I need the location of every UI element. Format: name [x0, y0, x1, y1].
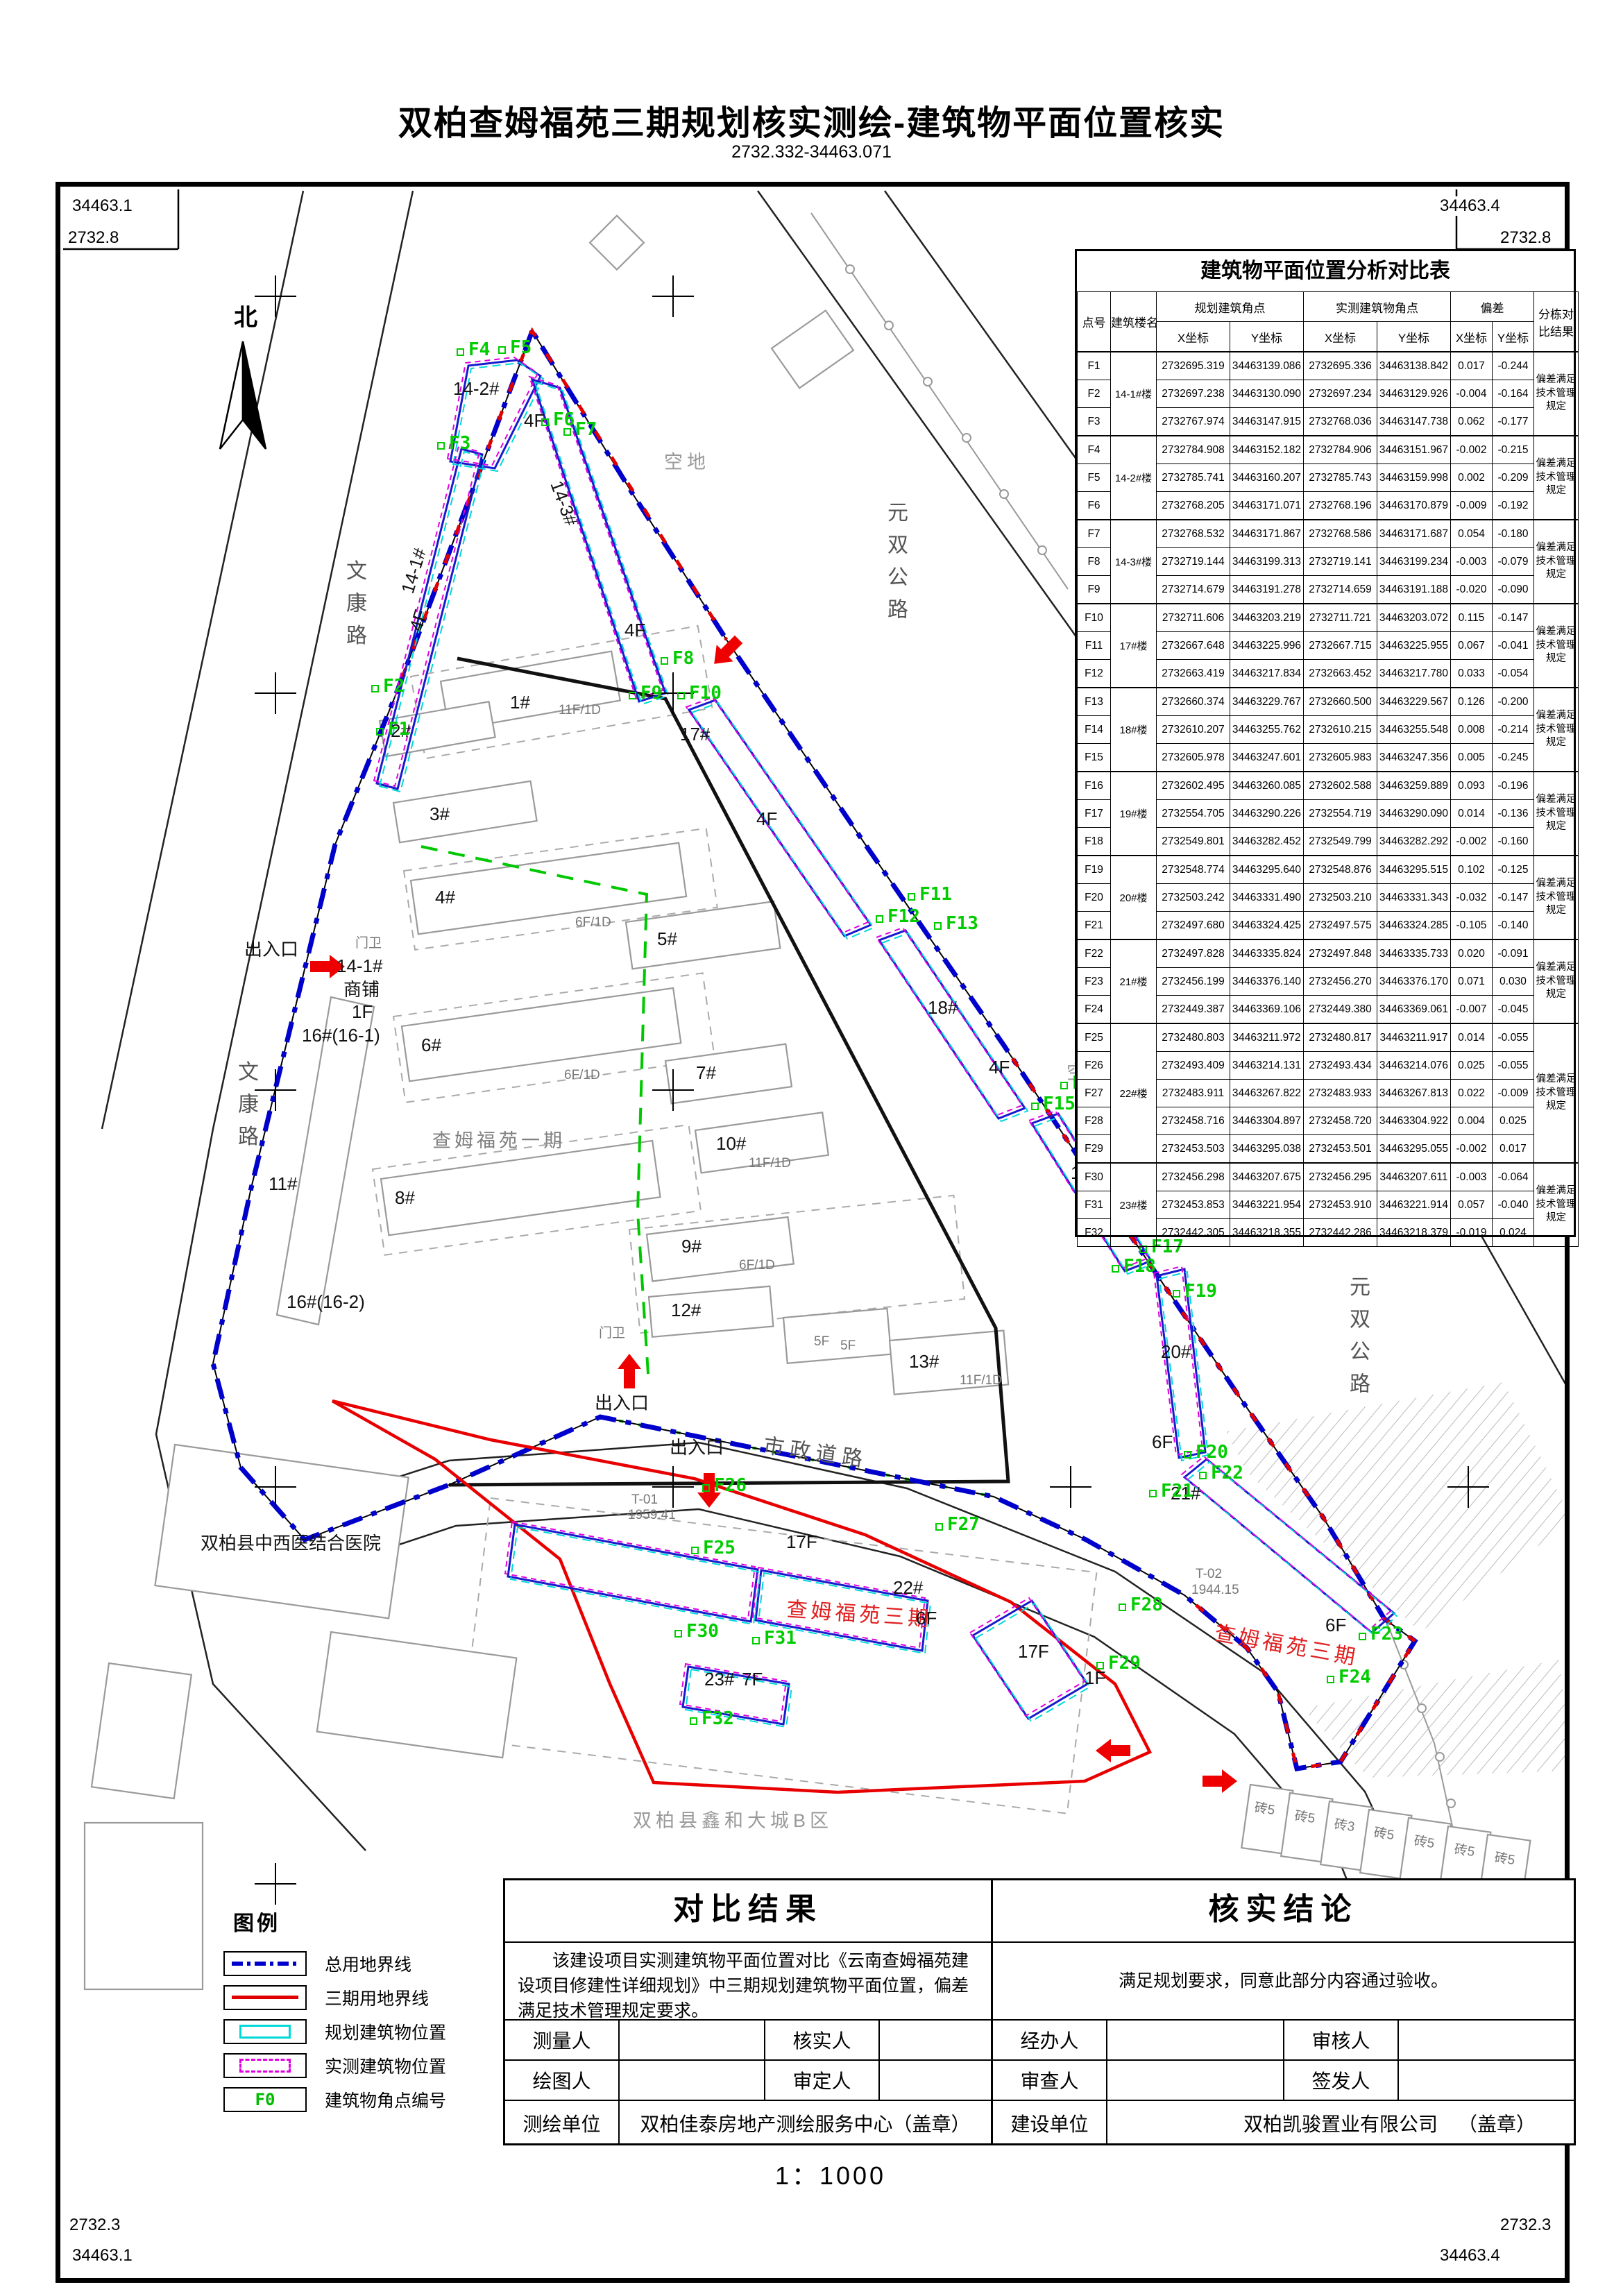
survey-unit-label: 测绘单位 — [505, 2101, 620, 2145]
legend-item: 总用地界线 — [223, 1946, 501, 1980]
corner-point-label: F11 — [919, 884, 952, 905]
table-cell: -0.007 — [1451, 996, 1493, 1024]
table-cell: -0.245 — [1493, 744, 1534, 772]
col-header-x: X坐标 — [1451, 322, 1493, 352]
corner-point-mark — [1327, 1676, 1334, 1683]
col-header-measured: 实测建筑物角点 — [1304, 292, 1451, 322]
table-cell: 2732602.495 — [1157, 772, 1230, 800]
table-cell: 34463247.601 — [1230, 744, 1304, 772]
approver-label: 审定人 — [765, 2061, 880, 2100]
table-cell: F32 — [1078, 1219, 1111, 1247]
map-label: 4F — [624, 620, 645, 640]
table-cell: 2732503.242 — [1157, 884, 1230, 912]
table-cell: 2732663.452 — [1304, 660, 1377, 688]
table-cell: -0.209 — [1493, 464, 1534, 492]
corner-coord-br-x: 2732.3 — [1498, 2216, 1553, 2235]
conclusion-panel: 核实结论 满足规划要求，同意此部分内容通过验收。 经办人 审核人 审查人 签发人… — [991, 1878, 1576, 2145]
verifier-value[interactable] — [880, 2021, 991, 2059]
map-label: 13# — [909, 1351, 940, 1372]
table-cell: 34463324.285 — [1377, 912, 1451, 940]
map-label: 双柏县鑫和大城B区 — [633, 1810, 833, 1831]
surveyor-value[interactable] — [620, 2021, 765, 2059]
map-label: 14-3# — [546, 478, 581, 529]
table-cell: 2732503.210 — [1304, 884, 1377, 912]
legend-symbol-line-red — [223, 1985, 307, 2010]
table-cell: -0.040 — [1493, 1191, 1534, 1219]
result-panel-body: 该建设项目实测建筑物平面位置对比《云南查姆福苑建设项目修建性详细规划》中三期规划… — [505, 1943, 991, 2021]
table-cell: F22 — [1078, 939, 1111, 968]
table-cell: 2732456.295 — [1304, 1163, 1377, 1191]
map-label: 市政道路 — [762, 1434, 869, 1472]
map-label: 7# — [696, 1062, 716, 1083]
corner-point-label: F32 — [702, 1708, 734, 1729]
table-cell: 34463335.733 — [1377, 939, 1451, 968]
table-cell: 0.014 — [1451, 800, 1493, 828]
table-cell: 18#楼 — [1111, 688, 1157, 772]
examiner-value[interactable] — [1107, 2061, 1284, 2100]
legend-symbol-rect-cyan — [223, 2019, 307, 2044]
map-label: 出入口 — [244, 939, 298, 960]
corner-coord-tl-y: 34463.1 — [70, 196, 135, 216]
map-label: 双柏县中西医结合医院 — [201, 1533, 381, 1554]
corner-coord-tr-x: 2732.8 — [1498, 228, 1553, 248]
table-cell: 0.002 — [1451, 464, 1493, 492]
corner-point-mark — [690, 1718, 697, 1724]
map-label: 砖3 — [1333, 1817, 1355, 1835]
table-row: F1017#楼2732711.60634463203.2192732711.72… — [1078, 604, 1579, 632]
table-cell: 0.017 — [1451, 352, 1493, 380]
table-cell: -0.244 — [1493, 352, 1534, 380]
corner-point-label: F28 — [1130, 1595, 1163, 1615]
table-cell: 2732711.721 — [1304, 604, 1377, 632]
corner-point-label: F22 — [1211, 1463, 1243, 1483]
table-cell: -0.136 — [1493, 800, 1534, 828]
issuer-label: 签发人 — [1284, 2061, 1399, 2100]
table-cell: 34463247.356 — [1377, 744, 1451, 772]
construction-unit-label: 建设单位 — [993, 2101, 1107, 2145]
corner-coord-br-y: 34463.4 — [1438, 2246, 1502, 2265]
map-label: 16#(16-1) — [302, 1025, 380, 1046]
road-wenkang-edge — [102, 191, 303, 1129]
table-cell: F3 — [1078, 408, 1111, 436]
col-header-y: Y坐标 — [1493, 322, 1534, 352]
table-cell: -0.002 — [1451, 1135, 1493, 1164]
table-cell: 34463376.170 — [1377, 968, 1451, 996]
table-cell: 34463147.915 — [1230, 408, 1304, 436]
table-cell: 0.025 — [1493, 1107, 1534, 1135]
table-cell: 34463331.490 — [1230, 884, 1304, 912]
table-cell: 19#楼 — [1111, 772, 1157, 856]
construction-unit-value: 双柏凯骏置业有限公司 （盖章） — [1107, 2101, 1574, 2145]
planned-outline — [692, 703, 874, 939]
map-label: 1# — [510, 692, 530, 713]
corner-point-label: F18 — [1123, 1256, 1156, 1277]
table-cell: 22#楼 — [1111, 1023, 1157, 1163]
corner-point-label: F7 — [575, 419, 597, 440]
table-cell: 34463199.234 — [1377, 548, 1451, 576]
table-cell: -0.009 — [1493, 1080, 1534, 1107]
legend-item-label: 规划建筑物位置 — [325, 2019, 446, 2044]
map-label: 出入口 — [670, 1437, 724, 1458]
legend-item: 规划建筑物位置 — [223, 2014, 501, 2048]
table-cell: -0.192 — [1493, 492, 1534, 520]
table-cell: 34463170.879 — [1377, 492, 1451, 520]
table-cell: 2732483.933 — [1304, 1080, 1377, 1107]
corner-point-label: F9 — [640, 683, 662, 704]
map-label: 元双公路 — [1350, 1276, 1376, 1396]
sheet-frame: 北文康路文康路元双公路元双公路市政道路空地空地查姆福苑一期查姆福苑三期查姆福苑三… — [56, 182, 1570, 2283]
legend-item-label: 建筑物角点编号 — [325, 2087, 446, 2112]
table-cell: 2732660.374 — [1157, 688, 1230, 716]
corner-point-mark — [908, 894, 915, 900]
table-cell: 34463130.090 — [1230, 380, 1304, 408]
table-cell: 0.030 — [1493, 968, 1534, 996]
map-label: 20# — [1161, 1341, 1191, 1362]
table-cell: 23#楼 — [1111, 1163, 1157, 1247]
table-cell: 0.025 — [1451, 1052, 1493, 1080]
corner-point-label: F23 — [1370, 1624, 1403, 1644]
table-cell: -0.147 — [1493, 604, 1534, 632]
map-label: 查姆福苑一期 — [432, 1130, 566, 1151]
corner-point-mark — [661, 658, 668, 664]
measured-outline — [876, 928, 1022, 1116]
building-18 — [879, 930, 1025, 1119]
table-cell: 34463282.292 — [1377, 828, 1451, 856]
table-cell: -0.019 — [1451, 1219, 1493, 1247]
table-cell: 2732610.207 — [1157, 716, 1230, 744]
table-cell: 2732456.298 — [1157, 1163, 1230, 1191]
table-cell: 2732493.434 — [1304, 1052, 1377, 1080]
table-cell: 2732480.803 — [1157, 1023, 1230, 1052]
table-cell: F12 — [1078, 660, 1111, 688]
map-label: 门卫 — [599, 1325, 625, 1341]
map-label: 6F — [1152, 1431, 1173, 1452]
surveyor-label: 测量人 — [505, 2021, 620, 2059]
map-label: 5F — [840, 1338, 856, 1353]
table-cell: F15 — [1078, 744, 1111, 772]
corner-point-label: F24 — [1339, 1667, 1371, 1687]
table-cell: 0.024 — [1493, 1219, 1534, 1247]
map-label: 4F — [989, 1057, 1010, 1078]
table-cell: F1 — [1078, 352, 1111, 380]
table-cell: 34463214.131 — [1230, 1052, 1304, 1080]
table-cell: -0.055 — [1493, 1052, 1534, 1080]
table-cell: 0.008 — [1451, 716, 1493, 744]
table-cell: 2732456.199 — [1157, 968, 1230, 996]
table-cell: 2732453.910 — [1304, 1191, 1377, 1219]
table-cell: 偏差满足技术管理规定 — [1534, 436, 1579, 520]
table-cell: 2732697.238 — [1157, 380, 1230, 408]
table-cell: 2732768.205 — [1157, 492, 1230, 520]
table-cell: 2732605.983 — [1304, 744, 1377, 772]
table-cell: 2732456.270 — [1304, 968, 1377, 996]
table-cell: -0.200 — [1493, 688, 1534, 716]
drafter-value[interactable] — [620, 2061, 765, 2100]
reviewer-value[interactable] — [1399, 2021, 1574, 2059]
table-cell: 34463229.767 — [1230, 688, 1304, 716]
table-cell: 0.004 — [1451, 1107, 1493, 1135]
table-cell: 0.067 — [1451, 632, 1493, 660]
corner-point-mark — [1359, 1633, 1366, 1640]
table-cell: -0.160 — [1493, 828, 1534, 856]
table-cell: 2732785.743 — [1304, 464, 1377, 492]
table-cell: 2732697.234 — [1304, 380, 1377, 408]
table-cell: 34463267.822 — [1230, 1080, 1304, 1107]
table-row: F114-1#楼2732695.31934463139.0862732695.3… — [1078, 352, 1579, 380]
table-cell: F26 — [1078, 1052, 1111, 1080]
table-cell: 偏差满足技术管理规定 — [1534, 1163, 1579, 1247]
corner-point-label: F8 — [672, 648, 694, 669]
table-cell: F14 — [1078, 716, 1111, 744]
table-cell: F9 — [1078, 576, 1111, 604]
corner-coord-tr-y: 34463.4 — [1438, 196, 1502, 216]
building-17 — [689, 700, 871, 936]
map-label: 14-1# — [337, 955, 383, 976]
map-label: 23# — [704, 1669, 735, 1690]
table-cell: 2732667.648 — [1157, 632, 1230, 660]
corner-point-mark — [438, 443, 444, 449]
table-cell: 34463160.207 — [1230, 464, 1304, 492]
map-label: 11F/1D — [960, 1373, 1002, 1388]
table-cell: 0.020 — [1451, 939, 1493, 968]
corner-point-mark — [1032, 1103, 1038, 1109]
corner-point-label: F19 — [1184, 1281, 1217, 1302]
table-cell: 0.005 — [1451, 744, 1493, 772]
map-label: 4F — [756, 808, 777, 829]
table-cell: 17#楼 — [1111, 604, 1157, 688]
corner-point-label: F1 — [388, 719, 409, 740]
measured-outline — [505, 1522, 755, 1619]
table-cell: F29 — [1078, 1135, 1111, 1164]
comparison-table-panel: 建筑物平面位置分析对比表 点号 建筑楼名 规划建筑角点 实测建筑物角点 偏差 分… — [1075, 249, 1576, 1237]
survey-unit-value: 双柏佳泰房地产测绘服务中心（盖章） — [620, 2101, 991, 2145]
map-label: 文康路 — [238, 1061, 264, 1148]
table-cell: F8 — [1078, 548, 1111, 576]
table-cell: 34463171.867 — [1230, 520, 1304, 548]
table-row: F714-3#楼2732768.53234463171.8672732768.5… — [1078, 520, 1579, 548]
table-cell: -0.054 — [1493, 660, 1534, 688]
issuer-value[interactable] — [1399, 2061, 1574, 2100]
table-row: F1619#楼2732602.49534463260.0852732602.58… — [1078, 772, 1579, 800]
table-cell: F13 — [1078, 688, 1111, 716]
approver-value[interactable] — [880, 2061, 991, 2100]
corner-point-label: F2 — [383, 676, 405, 697]
table-cell: 2732442.305 — [1157, 1219, 1230, 1247]
map-label: 1944.15 — [1191, 1583, 1239, 1597]
table-cell: 2732711.606 — [1157, 604, 1230, 632]
map-label: 9# — [681, 1236, 702, 1257]
map-label: 5F — [814, 1334, 829, 1349]
table-cell: 偏差满足技术管理规定 — [1534, 352, 1579, 436]
map-label: 门卫 — [355, 935, 382, 951]
map-label: 14-2# — [453, 378, 500, 399]
table-cell: -0.079 — [1493, 548, 1534, 576]
planned-outline — [882, 933, 1028, 1121]
corner-point-mark — [692, 1547, 698, 1554]
col-header-y: Y坐标 — [1230, 322, 1304, 352]
table-cell: 20#楼 — [1111, 856, 1157, 939]
corner-point-label: F5 — [510, 337, 532, 358]
table-cell: 34463304.922 — [1377, 1107, 1451, 1135]
table-cell: 2732549.801 — [1157, 828, 1230, 856]
table-cell: 0.054 — [1451, 520, 1493, 548]
table-cell: -0.140 — [1493, 912, 1534, 940]
col-header-deviation: 偏差 — [1451, 292, 1534, 322]
table-cell: 偏差满足技术管理规定 — [1534, 1023, 1579, 1163]
table-cell: 34463171.071 — [1230, 492, 1304, 520]
table-cell: 34463331.343 — [1377, 884, 1451, 912]
table-cell: 34463304.897 — [1230, 1107, 1304, 1135]
map-label: 元双公路 — [887, 502, 914, 622]
table-cell: 偏差满足技术管理规定 — [1534, 772, 1579, 856]
map-scale: 1：1000 — [726, 2156, 935, 2192]
comparison-table: 点号 建筑楼名 规划建筑角点 实测建筑物角点 偏差 分栋对比结果 X坐标 Y坐标… — [1077, 291, 1579, 1247]
table-cell: 34463203.219 — [1230, 604, 1304, 632]
corner-point-label: F20 — [1196, 1442, 1228, 1463]
table-cell: 34463147.738 — [1377, 408, 1451, 436]
table-cell: F11 — [1078, 632, 1111, 660]
legend: 图例 总用地界线三期用地界线规划建筑物位置实测建筑物位置F0建筑物角点编号 — [223, 1906, 501, 2116]
table-cell: -0.020 — [1451, 576, 1493, 604]
legend-item-label: 实测建筑物位置 — [325, 2053, 446, 2078]
table-row: F2522#楼2732480.80334463211.9722732480.81… — [1078, 1023, 1579, 1052]
table-cell: 34463225.955 — [1377, 632, 1451, 660]
table-cell: F27 — [1078, 1080, 1111, 1107]
corner-point-mark — [675, 1631, 681, 1637]
corner-point-label: F3 — [449, 433, 470, 454]
table-cell: 2732714.659 — [1304, 576, 1377, 604]
seal-placeholder: （盖章） — [1458, 2109, 1536, 2137]
table-cell: 2732449.387 — [1157, 996, 1230, 1024]
map-label: 砖5 — [1493, 1850, 1515, 1868]
legend-item: F0建筑物角点编号 — [223, 2082, 501, 2116]
col-header-result: 分栋对比结果 — [1534, 292, 1579, 352]
table-cell: 2732497.680 — [1157, 912, 1230, 940]
table-cell: 2732554.705 — [1157, 800, 1230, 828]
table-cell: 2732784.906 — [1304, 436, 1377, 464]
entrance-arrow-icon — [1096, 1739, 1130, 1762]
table-cell: 34463255.548 — [1377, 716, 1451, 744]
table-cell: 0.102 — [1451, 856, 1493, 884]
map-label: 砖5 — [1413, 1833, 1435, 1851]
table-cell: F18 — [1078, 828, 1111, 856]
legend-item-label: 三期用地界线 — [325, 1985, 429, 2010]
table-cell: 2732497.848 — [1304, 939, 1377, 968]
table-cell: 34463207.611 — [1377, 1163, 1451, 1191]
table-cell: -0.003 — [1451, 548, 1493, 576]
map-label: 22# — [893, 1577, 924, 1598]
legend-item-label: 总用地界线 — [325, 1951, 411, 1976]
map-label: 8# — [395, 1187, 415, 1208]
table-cell: 34463159.998 — [1377, 464, 1451, 492]
legend-item: 三期用地界线 — [223, 1980, 501, 2014]
table-cell: 2732442.286 — [1304, 1219, 1377, 1247]
table-cell: 34463191.278 — [1230, 576, 1304, 604]
table-cell: 0.126 — [1451, 688, 1493, 716]
table-cell: 34463376.140 — [1230, 968, 1304, 996]
table-cell: 2732497.828 — [1157, 939, 1230, 968]
table-cell: 2732449.380 — [1304, 996, 1377, 1024]
table-cell: 2732768.196 — [1304, 492, 1377, 520]
result-panel-title: 对比结果 — [505, 1880, 991, 1943]
drafter-label: 绘图人 — [505, 2061, 620, 2100]
table-cell: 0.017 — [1493, 1135, 1534, 1164]
table-cell: -0.032 — [1451, 884, 1493, 912]
table-cell: 2732605.978 — [1157, 744, 1230, 772]
table-cell: 34463295.640 — [1230, 856, 1304, 884]
table-cell: 2732554.719 — [1304, 800, 1377, 828]
corner-point-mark — [372, 686, 378, 692]
table-cell: -0.045 — [1493, 996, 1534, 1024]
table-cell: 2732549.799 — [1304, 828, 1377, 856]
table-cell: -0.041 — [1493, 632, 1534, 660]
table-cell: 34463221.914 — [1377, 1191, 1451, 1219]
table-cell: -0.004 — [1451, 380, 1493, 408]
table-cell: 34463218.379 — [1377, 1219, 1451, 1247]
table-cell: -0.090 — [1493, 576, 1534, 604]
corner-point-label: F26 — [714, 1475, 747, 1496]
table-cell: F21 — [1078, 912, 1111, 940]
entrance-arrow-icon — [1203, 1769, 1237, 1793]
table-cell: 0.014 — [1451, 1023, 1493, 1052]
table-cell: 偏差满足技术管理规定 — [1534, 604, 1579, 688]
corner-point-mark — [935, 923, 941, 929]
table-cell: 偏差满足技术管理规定 — [1534, 939, 1579, 1023]
table-cell: 34463295.055 — [1377, 1135, 1451, 1164]
table-cell: 偏差满足技术管理规定 — [1534, 688, 1579, 772]
table-cell: F16 — [1078, 772, 1111, 800]
table-cell: 2732548.774 — [1157, 856, 1230, 884]
table-cell: F23 — [1078, 968, 1111, 996]
table-cell: 34463217.780 — [1377, 660, 1451, 688]
table-cell: -0.064 — [1493, 1163, 1534, 1191]
map-label: 1959.41 — [628, 1508, 676, 1522]
map-label: 10# — [716, 1133, 747, 1154]
table-cell: 34463211.917 — [1377, 1023, 1451, 1052]
table-cell: 34463199.313 — [1230, 548, 1304, 576]
table-cell: 34463267.813 — [1377, 1080, 1451, 1107]
col-header-building: 建筑楼名 — [1111, 292, 1157, 352]
corner-point-mark — [876, 916, 883, 922]
table-cell: 2732695.336 — [1304, 352, 1377, 380]
table-cell: 2732768.532 — [1157, 520, 1230, 548]
legend-symbol-line-blue — [223, 1951, 307, 1976]
table-cell: 2732548.876 — [1304, 856, 1377, 884]
table-cell: -0.002 — [1451, 828, 1493, 856]
corner-point-label: F10 — [689, 683, 722, 704]
handler-value[interactable] — [1107, 2021, 1284, 2059]
corner-point-label: F4 — [468, 339, 490, 360]
table-cell: 34463139.086 — [1230, 352, 1304, 380]
corner-point-label: F12 — [887, 906, 920, 927]
table-cell: F30 — [1078, 1163, 1111, 1191]
table-cell: -0.214 — [1493, 716, 1534, 744]
table-cell: 34463129.926 — [1377, 380, 1451, 408]
table-cell: 34463282.452 — [1230, 828, 1304, 856]
map-label: T-02 — [1196, 1567, 1222, 1581]
table-row: F3023#楼2732456.29834463207.6752732456.29… — [1078, 1163, 1579, 1191]
corner-point-label: F13 — [946, 913, 978, 934]
map-label: 5# — [657, 928, 677, 949]
table-cell: F5 — [1078, 464, 1111, 492]
table-cell: 34463191.188 — [1377, 576, 1451, 604]
corner-point-label: F27 — [947, 1514, 980, 1535]
legend-symbol-rect-magenta — [223, 2053, 307, 2078]
table-cell: 0.071 — [1451, 968, 1493, 996]
conclusion-panel-title: 核实结论 — [993, 1880, 1574, 1943]
map-label: 16#(16-2) — [287, 1291, 365, 1312]
table-cell: 2732493.409 — [1157, 1052, 1230, 1080]
